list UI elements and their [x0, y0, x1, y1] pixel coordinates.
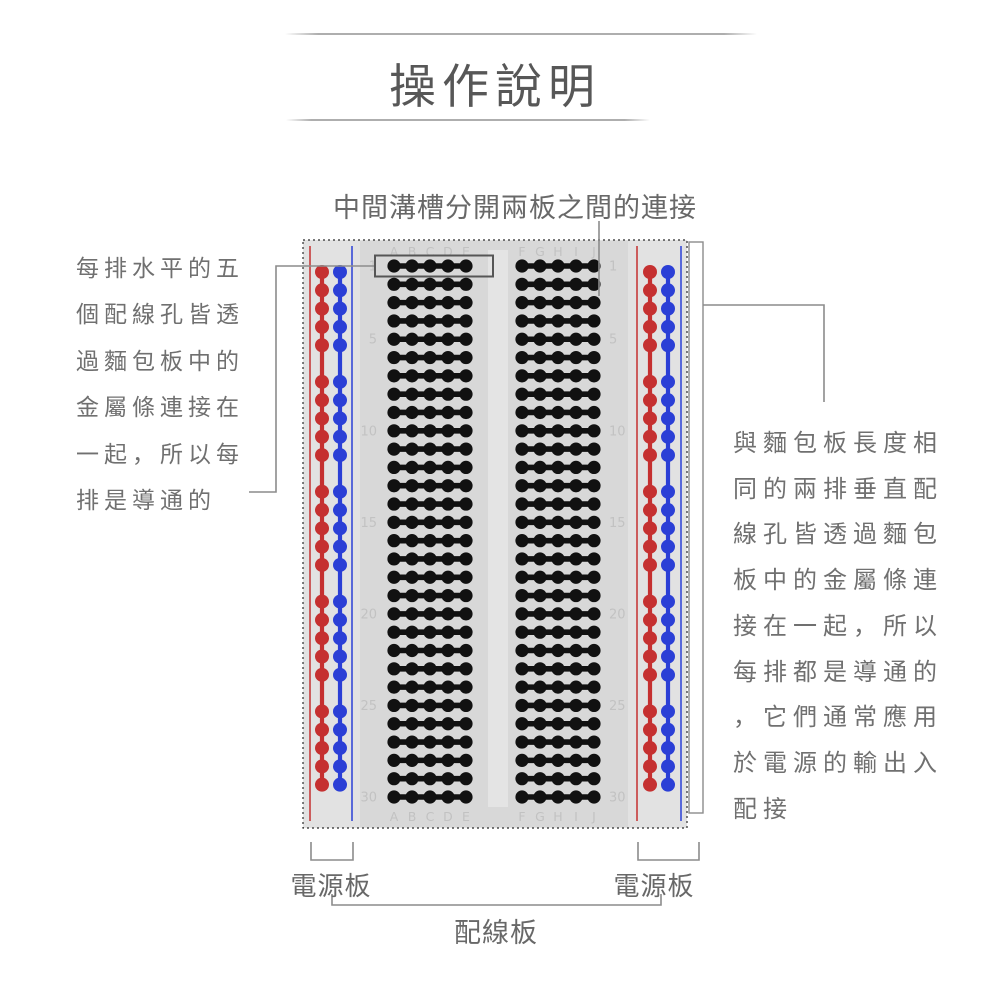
label-power-rail-left: 電源板 [290, 866, 372, 903]
svg-text:E: E [462, 809, 470, 824]
instruction-diagram-page: 操作說明 中間溝槽分開兩板之間的連接 每排水平的五 個配線孔皆透 過麵包板中的 … [0, 0, 1000, 1000]
svg-text:B: B [408, 809, 417, 824]
svg-text:D: D [443, 809, 453, 824]
svg-text:30: 30 [609, 790, 626, 805]
svg-text:I: I [574, 809, 578, 824]
svg-text:20: 20 [609, 607, 626, 622]
svg-text:F: F [518, 244, 525, 259]
svg-text:15: 15 [609, 516, 626, 531]
svg-text:A: A [390, 244, 399, 259]
svg-text:G: G [535, 244, 545, 259]
breadboard-diagram: AABBCCDDEEFFGGHHIIJJ11551010151520202525… [0, 0, 1000, 1000]
svg-text:D: D [443, 244, 453, 259]
svg-text:1: 1 [609, 260, 617, 275]
svg-text:C: C [426, 809, 435, 824]
svg-text:20: 20 [360, 607, 377, 622]
svg-text:B: B [408, 244, 417, 259]
svg-text:I: I [574, 244, 578, 259]
svg-text:G: G [535, 809, 545, 824]
svg-text:30: 30 [360, 790, 377, 805]
svg-text:5: 5 [369, 333, 377, 348]
center-groove [488, 250, 508, 807]
label-power-rail-right: 電源板 [613, 866, 695, 903]
svg-text:10: 10 [360, 424, 377, 439]
svg-text:H: H [553, 244, 562, 259]
power-rail-bracket [689, 242, 703, 813]
svg-text:H: H [553, 809, 562, 824]
label-terminal-strip: 配線板 [449, 911, 543, 950]
svg-text:25: 25 [609, 699, 626, 714]
svg-text:E: E [462, 244, 470, 259]
board-body [303, 240, 687, 828]
svg-text:J: J [591, 244, 596, 259]
svg-text:15: 15 [360, 516, 377, 531]
svg-text:5: 5 [609, 333, 617, 348]
svg-text:25: 25 [360, 699, 377, 714]
svg-text:C: C [426, 244, 435, 259]
svg-text:J: J [591, 809, 596, 824]
svg-text:10: 10 [609, 424, 626, 439]
svg-text:A: A [390, 809, 399, 824]
svg-text:F: F [518, 809, 525, 824]
